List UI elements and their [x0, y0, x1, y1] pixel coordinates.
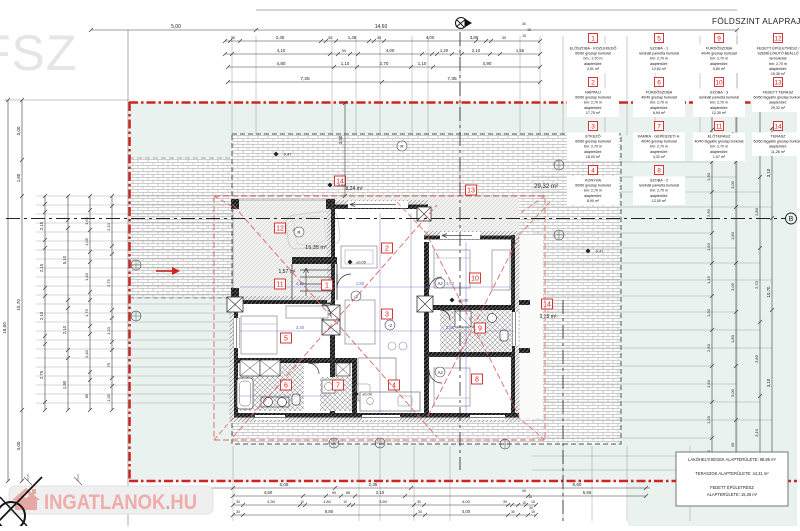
svg-text:60/60 greslap burkolat: 60/60 greslap burkolat [575, 140, 611, 144]
svg-text:FÖLDSZINT ALAPRAJZ: FÖLDSZINT ALAPRAJZ [712, 16, 800, 26]
svg-text:1,30: 1,30 [706, 308, 711, 317]
svg-text:6,60: 6,60 [573, 482, 582, 487]
svg-text:2,35: 2,35 [369, 482, 378, 487]
svg-text:R: R [400, 144, 403, 149]
svg-text:-2: -2 [388, 323, 392, 328]
svg-text:30: 30 [503, 500, 507, 504]
svg-text:bm: 2,70 m: bm: 2,70 m [584, 145, 602, 149]
svg-text:3,50: 3,50 [446, 325, 455, 330]
svg-text:12,30 m²: 12,30 m² [712, 111, 727, 115]
svg-text:4,00: 4,00 [462, 509, 471, 514]
svg-text:1,20: 1,20 [706, 415, 711, 424]
svg-text:10: 10 [300, 500, 304, 504]
svg-text:2,80: 2,80 [754, 354, 759, 363]
svg-text:2,10: 2,10 [62, 325, 67, 334]
svg-text:KAMRA - GÉPÉSZETI H.: KAMRA - GÉPÉSZETI H. [638, 134, 681, 139]
svg-text:12: 12 [276, 226, 284, 233]
svg-text:5,80 m²: 5,80 m² [713, 67, 726, 71]
svg-text:3,50: 3,50 [379, 499, 388, 504]
svg-text:4,00: 4,00 [426, 35, 435, 40]
svg-text:2: 2 [591, 79, 595, 86]
svg-text:1,20: 1,20 [106, 326, 111, 335]
svg-text:INGATLANOK.HU: INGATLANOK.HU [44, 491, 197, 514]
svg-text:3: 3 [385, 312, 389, 319]
svg-text:alapterület:: alapterület: [650, 194, 668, 198]
svg-text:bm: 2,70 m: bm: 2,70 m [710, 145, 728, 149]
svg-text:3,51 m²: 3,51 m² [587, 67, 600, 71]
svg-text:10,70: 10,70 [766, 286, 771, 298]
svg-text:8: 8 [657, 167, 661, 174]
svg-text:2,80: 2,80 [754, 207, 759, 216]
svg-text:alapterület:: alapterület: [769, 145, 787, 149]
svg-text:alapterület:: alapterület: [710, 106, 728, 110]
svg-text:14,60: 14,60 [375, 24, 388, 30]
svg-text:9: 9 [478, 326, 482, 333]
svg-text:bm: 2,70 m: bm: 2,70 m [584, 189, 602, 193]
svg-text:1,43: 1,43 [84, 272, 89, 281]
svg-text:1,20: 1,20 [440, 48, 449, 53]
svg-text:18,03 m²: 18,03 m² [586, 155, 601, 159]
svg-text:laminált parketta burkolat: laminált parketta burkolat [699, 96, 739, 100]
svg-text:1,10: 1,10 [418, 61, 427, 66]
svg-text:7,25: 7,25 [300, 76, 310, 82]
svg-text:14: 14 [774, 123, 782, 130]
svg-text:FÜRDŐSZOBA: FÜRDŐSZOBA [646, 90, 673, 95]
svg-text:8: 8 [475, 377, 479, 384]
svg-text:9: 9 [717, 35, 721, 42]
svg-text:3,15 m²: 3,15 m² [540, 314, 557, 320]
svg-text:3,00: 3,00 [730, 282, 735, 291]
svg-text:2,10: 2,10 [376, 490, 385, 495]
svg-text:15,35 m²: 15,35 m² [305, 245, 327, 251]
svg-text:laminált parketta burkolat: laminált parketta burkolat [639, 184, 679, 188]
svg-text:30: 30 [328, 36, 332, 40]
svg-text:alapterület:: alapterület: [769, 67, 787, 71]
svg-text:SZOBA - 2: SZOBA - 2 [650, 179, 668, 183]
svg-text:2,70: 2,70 [754, 280, 759, 289]
svg-text:bm: 2,70 m: bm: 2,70 m [769, 62, 787, 66]
svg-text:alapterület:: alapterület: [584, 194, 602, 198]
svg-text:60/60 greslap burkolat: 60/60 greslap burkolat [575, 52, 611, 56]
svg-text:3,50: 3,50 [338, 135, 343, 144]
svg-text:40/40 greslap burkolat: 40/40 greslap burkolat [701, 52, 737, 56]
svg-text:FEDETT ÉPÜLETRÉSZ /: FEDETT ÉPÜLETRÉSZ / [757, 46, 800, 51]
svg-text:R: R [297, 230, 300, 235]
svg-text:B: B [789, 216, 794, 223]
svg-text:11: 11 [716, 123, 723, 130]
svg-text:3: 3 [591, 123, 595, 130]
svg-text:6,94 m²: 6,94 m² [653, 111, 666, 115]
svg-text:60/60 greslap burkolat: 60/60 greslap burkolat [575, 96, 611, 100]
svg-text:13: 13 [774, 79, 782, 86]
svg-text:SZOBA - 3: SZOBA - 3 [710, 91, 728, 95]
svg-text:1,50: 1,50 [706, 379, 711, 388]
svg-text:alapterület:: alapterület: [584, 106, 602, 110]
svg-text:ÉTKEZŐ: ÉTKEZŐ [585, 134, 600, 139]
svg-text:2,75: 2,75 [39, 370, 44, 379]
svg-text:1,80: 1,80 [356, 281, 365, 286]
svg-text:AJ: AJ [437, 370, 442, 375]
svg-text:6: 6 [284, 383, 288, 390]
svg-text:2,10: 2,10 [106, 222, 111, 231]
svg-text:AJ: AJ [437, 281, 442, 286]
svg-text:10: 10 [343, 500, 347, 504]
svg-text:8,90 m²: 8,90 m² [587, 199, 600, 203]
svg-text:1,30: 1,30 [706, 172, 711, 181]
svg-text:1,90: 1,90 [62, 380, 67, 389]
svg-text:12: 12 [774, 35, 782, 42]
svg-text:bm: 2,70 m: bm: 2,70 m [650, 189, 668, 193]
svg-text:1,45: 1,45 [348, 35, 357, 40]
svg-text:1,10: 1,10 [341, 61, 350, 66]
svg-text:3,00: 3,00 [16, 126, 21, 135]
svg-text:alapterület:: alapterület: [584, 62, 602, 66]
svg-text:FÜRDŐSZOBA: FÜRDŐSZOBA [706, 46, 733, 51]
svg-text:TERASZOK ALAPTERÜLETE: 44,31 m: TERASZOK ALAPTERÜLETE: 44,31 m² [695, 471, 769, 476]
svg-text:3,00: 3,00 [16, 441, 21, 450]
svg-text:18,50: 18,50 [2, 322, 7, 334]
svg-text:30: 30 [236, 510, 240, 514]
svg-text:12,00 m²: 12,00 m² [652, 199, 667, 203]
svg-text:SZEMÉLYAUTÓ BEÁLLÓ: SZEMÉLYAUTÓ BEÁLLÓ [757, 51, 798, 56]
svg-text:30: 30 [730, 442, 735, 447]
svg-text:3,10: 3,10 [766, 378, 771, 387]
svg-text:1,80: 1,80 [730, 231, 735, 240]
svg-text:40/40 greslap burkolat: 40/40 greslap burkolat [641, 140, 677, 144]
svg-text:29,32 m²: 29,32 m² [771, 106, 786, 110]
svg-text:29,32 m²: 29,32 m² [534, 184, 558, 190]
svg-text:1,15: 1,15 [706, 275, 711, 284]
svg-text:FEDETT TERASZ: FEDETT TERASZ [763, 91, 794, 95]
svg-text:30: 30 [529, 506, 533, 510]
svg-text:2,70: 2,70 [380, 61, 389, 66]
svg-text:2: 2 [385, 246, 389, 253]
svg-text:2,10: 2,10 [39, 311, 44, 320]
svg-text:-0,47: -0,47 [594, 249, 604, 254]
svg-text:4,60: 4,60 [264, 490, 273, 495]
svg-text:3,85: 3,85 [470, 35, 479, 40]
svg-text:7,35: 7,35 [447, 76, 457, 82]
svg-text:5: 5 [284, 336, 288, 343]
svg-text:14: 14 [543, 302, 551, 309]
svg-text:-0,47: -0,47 [282, 152, 292, 157]
svg-text:4,10: 4,10 [277, 48, 286, 53]
svg-text:1,50: 1,50 [706, 242, 711, 251]
svg-text:7: 7 [657, 123, 661, 130]
svg-text:1,80: 1,80 [730, 334, 735, 343]
svg-text:alapterület:: alapterület: [769, 101, 787, 105]
svg-text:bm: 2,70 m: bm: 2,70 m [710, 101, 728, 105]
svg-text:2,15: 2,15 [39, 221, 44, 230]
svg-text:SZOBA - 1: SZOBA - 1 [650, 47, 668, 51]
svg-text:7: 7 [336, 383, 340, 390]
svg-text:2,50: 2,50 [706, 343, 711, 352]
svg-text:1,57 m²: 1,57 m² [713, 155, 726, 159]
svg-text:30: 30 [231, 36, 235, 40]
svg-text:bm: 2,70 m: bm: 2,70 m [650, 145, 668, 149]
svg-text:8,24 m²: 8,24 m² [346, 186, 363, 192]
svg-text:8,80: 8,80 [325, 509, 334, 514]
svg-text:1,05: 1,05 [84, 237, 89, 246]
svg-text:3,00: 3,00 [730, 180, 735, 189]
svg-text:1,55: 1,55 [516, 48, 525, 53]
svg-text:alapterület:: alapterület: [650, 150, 668, 154]
svg-text:NAPPALI: NAPPALI [585, 91, 601, 95]
svg-text:KONYHA: KONYHA [585, 179, 602, 183]
svg-text:60/60 fagyálló greslap burkola: 60/60 fagyálló greslap burkolat [754, 140, 800, 144]
svg-text:5,00: 5,00 [171, 24, 181, 30]
svg-text:4,00: 4,00 [386, 48, 395, 53]
svg-text:40/40 fagyálló greslap burkola: 40/40 fagyálló greslap burkolat [695, 140, 744, 144]
svg-text:3,30: 3,30 [296, 325, 305, 330]
svg-text:FEDETT ÉPÜLETRÉSZ: FEDETT ÉPÜLETRÉSZ [710, 485, 754, 490]
svg-text:1,35: 1,35 [106, 393, 111, 402]
svg-text:4,80: 4,80 [277, 61, 286, 66]
svg-text:85: 85 [84, 393, 89, 398]
svg-text:FSZ: FSZ [0, 25, 77, 81]
svg-text:3,30: 3,30 [267, 499, 276, 504]
svg-text:60/60 fagyálló greslap burkola: 60/60 fagyálló greslap burkolat [754, 96, 800, 100]
svg-text:±0,00: ±0,00 [362, 392, 373, 397]
svg-text:12,62 m²: 12,62 m² [652, 67, 667, 71]
svg-text:4: 4 [591, 167, 595, 174]
svg-text:30: 30 [511, 510, 515, 514]
svg-text:laminált parketta burkolat: laminált parketta burkolat [639, 52, 679, 56]
svg-text:4,90: 4,90 [483, 61, 492, 66]
svg-text:bm: 2,70 m: bm: 2,70 m [710, 57, 728, 61]
svg-text:2,75: 2,75 [106, 278, 111, 287]
svg-text:75: 75 [106, 362, 111, 367]
svg-text:alapterület:: alapterület: [650, 106, 668, 110]
svg-text:30: 30 [236, 500, 240, 504]
svg-text:3,10: 3,10 [766, 168, 771, 177]
svg-text:15: 15 [528, 495, 532, 499]
svg-text:10: 10 [471, 276, 479, 283]
svg-text:4,32 m²: 4,32 m² [653, 155, 666, 159]
svg-text:30: 30 [522, 489, 526, 493]
svg-text:térburkolat: térburkolat [770, 57, 787, 61]
svg-text:5,55: 5,55 [583, 490, 592, 495]
svg-text:2,10: 2,10 [472, 48, 481, 53]
svg-text:alapterület:: alapterület: [710, 150, 728, 154]
svg-text:5,10: 5,10 [62, 255, 67, 264]
svg-text:4,00: 4,00 [462, 499, 471, 504]
svg-text:1,80: 1,80 [16, 173, 21, 182]
svg-text:bm: 2,70 m: bm: 2,70 m [650, 57, 668, 61]
svg-text:30: 30 [502, 36, 506, 40]
svg-text:85: 85 [346, 491, 350, 495]
svg-text:30: 30 [418, 510, 422, 514]
svg-text:90: 90 [332, 491, 336, 495]
svg-text:5: 5 [657, 35, 661, 42]
svg-text:bm.: 2,70 m: bm.: 2,70 m [584, 57, 603, 61]
svg-text:13: 13 [467, 188, 475, 195]
svg-text:2,40: 2,40 [84, 349, 89, 358]
svg-text:30: 30 [522, 22, 526, 26]
svg-text:ALAPTERÜLETE: 15,35 m²: ALAPTERÜLETE: 15,35 m² [707, 492, 758, 497]
svg-text:11: 11 [276, 282, 283, 289]
svg-text:11,26 m²: 11,26 m² [771, 150, 786, 154]
svg-text:ELŐSZOBA - KÖZLEKEDŐ: ELŐSZOBA - KÖZLEKEDŐ [570, 46, 617, 51]
svg-text:TERASZ: TERASZ [771, 135, 787, 139]
svg-text:15: 15 [531, 500, 535, 504]
svg-text:bm: 2,70 m: bm: 2,70 m [584, 101, 602, 105]
svg-text:LAKÓHELYISÉGEK ALAPTERÜLETE: 9: LAKÓHELYISÉGEK ALAPTERÜLETE: 98,89 m² [688, 457, 776, 462]
svg-text:1,70: 1,70 [84, 308, 89, 317]
svg-text:1,80: 1,80 [323, 499, 332, 504]
svg-text:5,05: 5,05 [280, 482, 289, 487]
svg-text:6: 6 [657, 79, 661, 86]
svg-text:3,10: 3,10 [754, 428, 759, 437]
svg-text:15: 15 [531, 510, 535, 514]
svg-text:ELŐTERASZ: ELŐTERASZ [708, 134, 731, 139]
svg-text:bm: 2,70 m: bm: 2,70 m [650, 101, 668, 105]
svg-text:±0,00: ±0,00 [356, 260, 367, 265]
svg-text:1: 1 [591, 35, 595, 42]
svg-text:10,70: 10,70 [16, 299, 21, 311]
svg-text:15: 15 [522, 34, 526, 38]
svg-text:1,65: 1,65 [84, 216, 89, 225]
svg-text:15,36 m²: 15,36 m² [771, 72, 786, 76]
svg-text:alapterület:: alapterület: [650, 62, 668, 66]
svg-text:3,00: 3,00 [730, 388, 735, 397]
svg-text:17,75 m²: 17,75 m² [586, 111, 601, 115]
svg-text:2,15: 2,15 [39, 263, 44, 272]
svg-text:10: 10 [715, 79, 723, 86]
svg-text:2,45: 2,45 [276, 35, 285, 40]
svg-text:30: 30 [417, 500, 421, 504]
svg-text:alapterület:: alapterület: [584, 150, 602, 154]
svg-text:1: 1 [325, 283, 329, 290]
svg-text:30: 30 [377, 36, 381, 40]
svg-text:15: 15 [522, 501, 526, 505]
svg-text:2,60: 2,60 [706, 208, 711, 217]
svg-text:40/40 greslap burkolat: 40/40 greslap burkolat [641, 96, 677, 100]
svg-text:alapterület:: alapterület: [710, 62, 728, 66]
svg-text:60/60 greslap burkolat: 60/60 greslap burkolat [575, 184, 611, 188]
svg-text:50: 50 [342, 49, 346, 53]
